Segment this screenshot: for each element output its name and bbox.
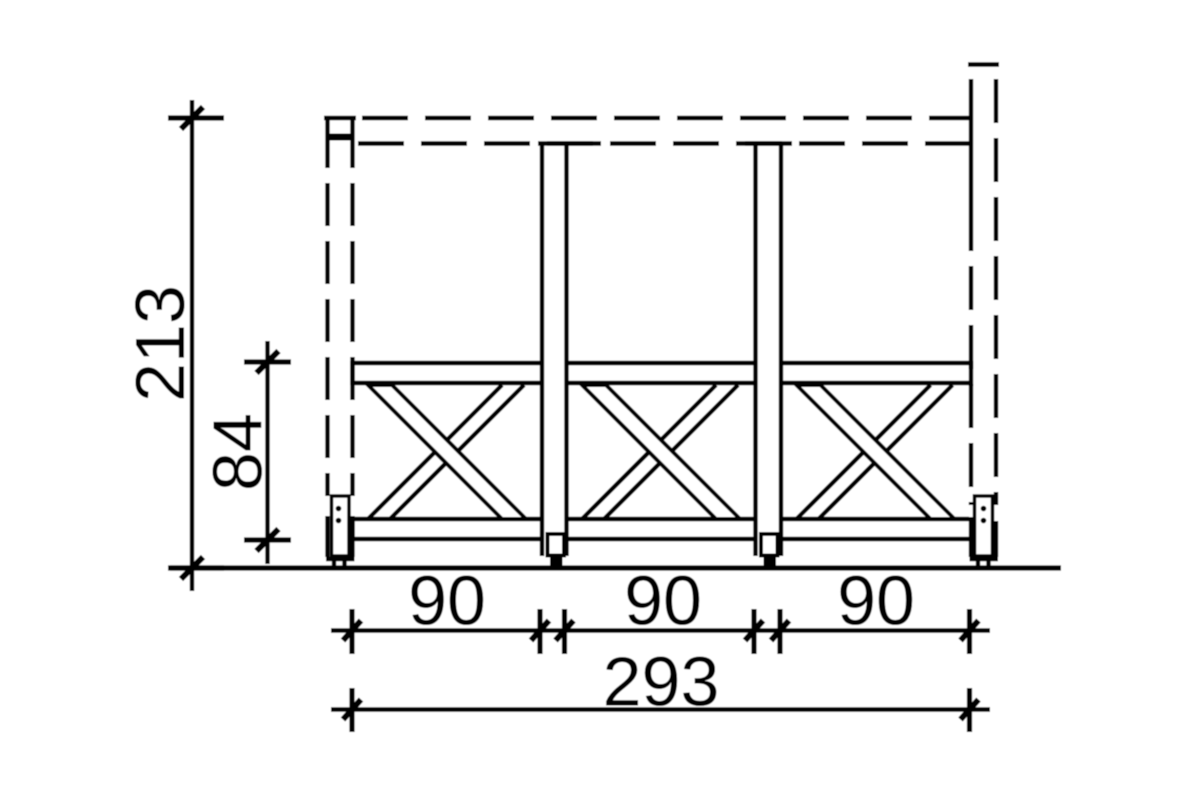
- svg-text:84: 84: [199, 413, 277, 491]
- svg-text:90: 90: [837, 562, 915, 640]
- svg-text:293: 293: [603, 643, 720, 721]
- svg-text:213: 213: [121, 285, 199, 402]
- svg-text:90: 90: [408, 562, 486, 640]
- svg-text:90: 90: [624, 562, 702, 640]
